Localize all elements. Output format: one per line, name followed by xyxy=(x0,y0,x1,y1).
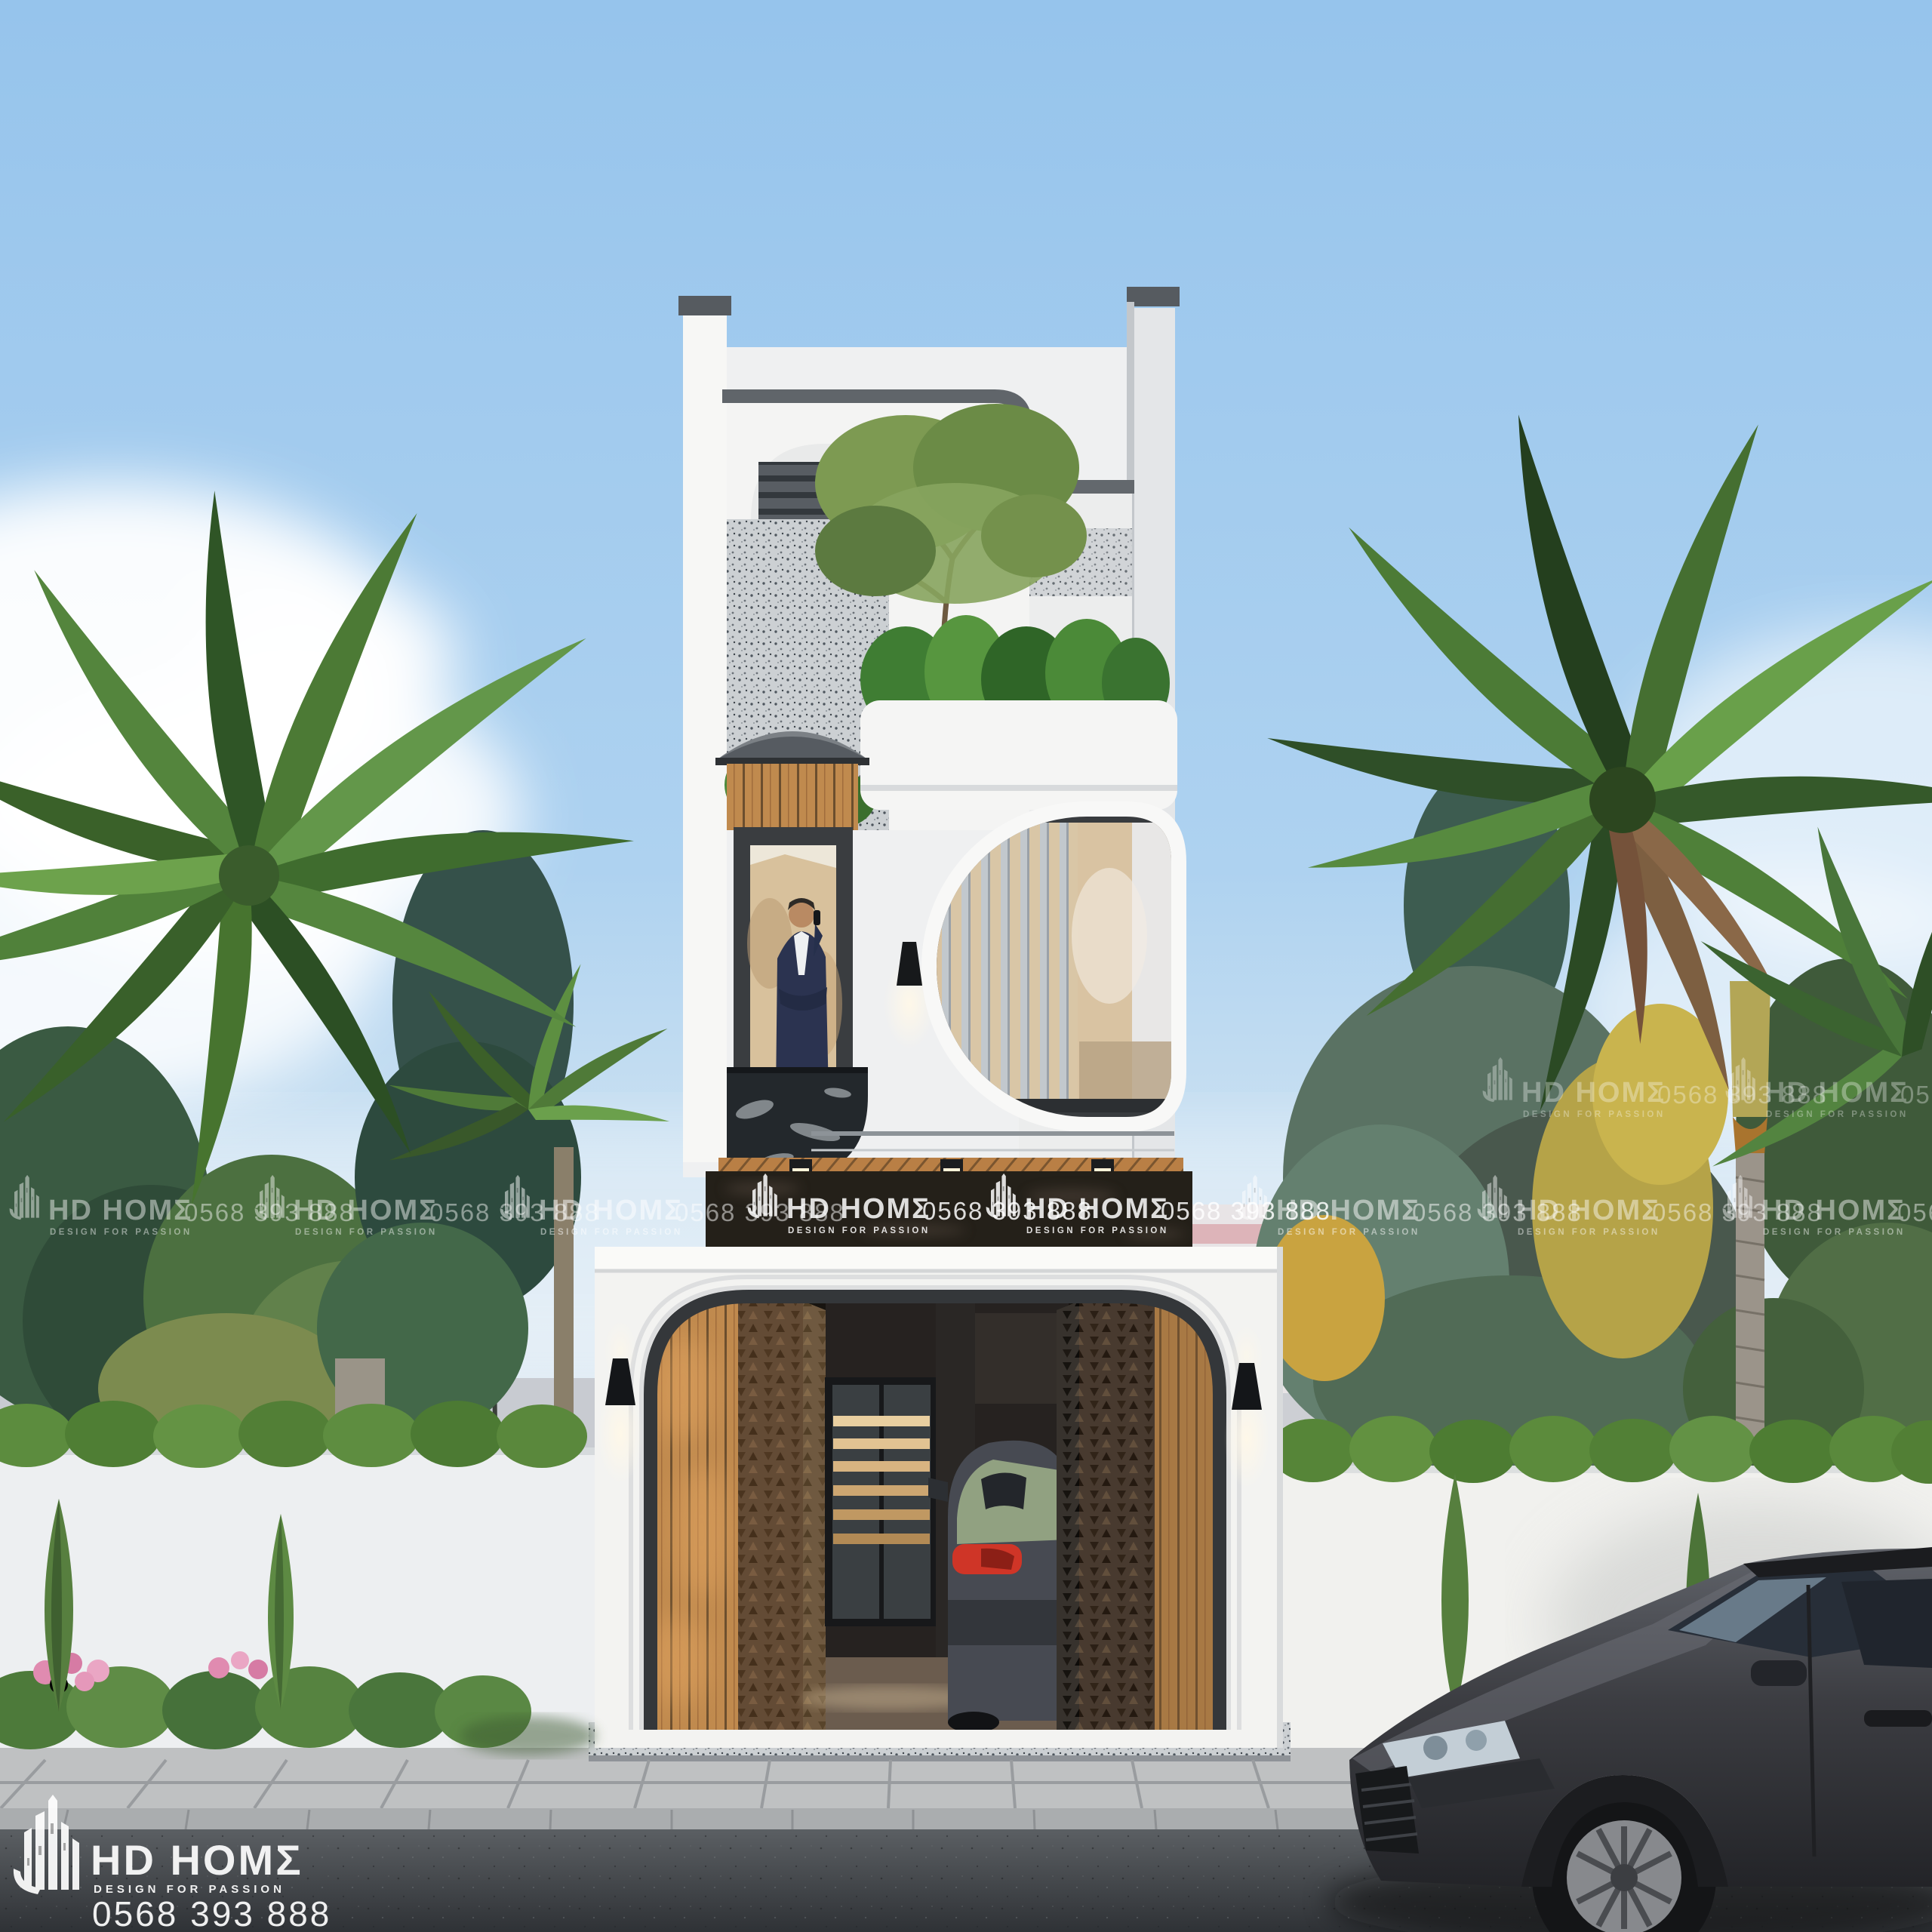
sconce-ground-left xyxy=(598,1321,643,1484)
watermark-tagline: DESIGN FOR PASSION xyxy=(1026,1226,1169,1235)
watermark-brand: HD HOMΣ xyxy=(1761,1195,1906,1226)
watermark-brand: HD HOMΣ xyxy=(1764,1077,1909,1109)
watermark-tagline: DESIGN FOR PASSION xyxy=(50,1228,192,1237)
garage-car-bumper xyxy=(948,1600,1069,1645)
watermark-brand: HD HOMΣ xyxy=(48,1195,192,1226)
pylon-cap-right xyxy=(1127,287,1180,306)
watermark-brand: HD HOMΣ xyxy=(786,1193,931,1225)
pylon-cap-left xyxy=(678,296,731,315)
footer-phone: 0568 393 888 xyxy=(92,1894,331,1932)
watermark-tagline: DESIGN FOR PASSION xyxy=(1523,1110,1666,1119)
watermark-brand: HD HOMΣ xyxy=(1025,1193,1169,1225)
balcony-bay xyxy=(727,764,868,1177)
watermark-brand: HD HOMΣ xyxy=(294,1195,438,1226)
watermark-tagline: DESIGN FOR PASSION xyxy=(295,1228,438,1237)
open-gate-leaf-right xyxy=(1057,1301,1079,1736)
roof-planter xyxy=(860,700,1177,810)
footer-brand: HD HOMΣ xyxy=(91,1836,303,1884)
cornice xyxy=(595,1247,1283,1269)
architectural-render: HD HOMΣ DESIGN FOR PASSION 0568 393 888 … xyxy=(0,0,1932,1932)
phone xyxy=(814,910,820,925)
balcony-wood-band xyxy=(727,764,858,830)
watermark-brand: HD HOMΣ xyxy=(539,1195,683,1226)
watermark-brand: HD HOMΣ xyxy=(1521,1077,1666,1109)
garage-interior xyxy=(649,1297,1220,1736)
parapet-pylon-left xyxy=(683,302,727,1162)
watermark-phone: 0568 393 888 xyxy=(1897,1198,1932,1226)
watermark-tagline: DESIGN FOR PASSION xyxy=(788,1226,931,1235)
scene-canvas: HD HOMΣ DESIGN FOR PASSION 0568 393 888 … xyxy=(0,0,1932,1932)
door-handle xyxy=(1864,1710,1932,1727)
watermark-tagline: DESIGN FOR PASSION xyxy=(1763,1228,1906,1237)
watermark-tagline: DESIGN FOR PASSION xyxy=(1518,1228,1660,1237)
watermark-brand: HD HOMΣ xyxy=(1276,1195,1420,1226)
watermark-tagline: DESIGN FOR PASSION xyxy=(540,1228,683,1237)
watermark-brand: HD HOMΣ xyxy=(1516,1195,1660,1226)
garage-car-headrest xyxy=(981,1472,1026,1509)
sconce-ground-right xyxy=(1224,1325,1269,1488)
watermark-phone: 0568 393 888 xyxy=(1900,1081,1932,1109)
watermark-tagline: DESIGN FOR PASSION xyxy=(1278,1228,1420,1237)
watermark-tagline: DESIGN FOR PASSION xyxy=(1766,1110,1909,1119)
side-mirror xyxy=(1751,1660,1807,1686)
